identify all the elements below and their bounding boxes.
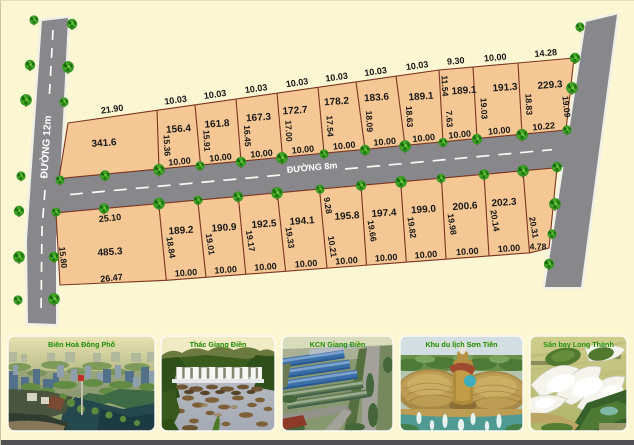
svg-text:10.00: 10.00 <box>333 140 356 152</box>
svg-text:Khu du lịch Sơn Tiên: Khu du lịch Sơn Tiên <box>425 340 497 349</box>
svg-text:167.3: 167.3 <box>246 112 272 125</box>
svg-text:190.9: 190.9 <box>211 222 237 235</box>
svg-text:10.00: 10.00 <box>335 255 358 267</box>
svg-text:172.7: 172.7 <box>282 105 308 118</box>
svg-text:9.30: 9.30 <box>447 55 465 67</box>
svg-text:KCN Giang Điền: KCN Giang Điền <box>310 340 366 349</box>
svg-text:229.3: 229.3 <box>537 79 563 92</box>
svg-text:10.00: 10.00 <box>456 246 479 258</box>
svg-text:202.3: 202.3 <box>491 197 517 210</box>
svg-text:11.54: 11.54 <box>439 75 450 97</box>
svg-text:10.00: 10.00 <box>375 252 398 264</box>
svg-text:161.8: 161.8 <box>204 118 230 131</box>
svg-text:18.09: 18.09 <box>364 110 375 132</box>
svg-text:14.28: 14.28 <box>534 47 557 59</box>
svg-text:189.1: 189.1 <box>451 85 477 98</box>
svg-text:10.00: 10.00 <box>214 264 237 276</box>
svg-text:Sân bay Long Thành: Sân bay Long Thành <box>543 340 614 349</box>
svg-text:10.00: 10.00 <box>291 144 314 156</box>
svg-text:Thác Giang Điền: Thác Giang Điền <box>190 340 247 349</box>
svg-text:17.00: 17.00 <box>283 120 294 142</box>
svg-text:18.83: 18.83 <box>523 93 534 115</box>
svg-text:192.5: 192.5 <box>251 218 277 231</box>
svg-text:16.45: 16.45 <box>242 125 253 147</box>
svg-text:341.6: 341.6 <box>91 137 117 150</box>
svg-text:197.4: 197.4 <box>371 207 397 220</box>
svg-text:10.00: 10.00 <box>484 52 507 64</box>
svg-text:10.00: 10.00 <box>254 261 277 273</box>
svg-text:195.8: 195.8 <box>334 210 360 223</box>
svg-text:18.63: 18.63 <box>404 106 415 128</box>
svg-text:10.00: 10.00 <box>414 249 437 261</box>
svg-text:10.00: 10.00 <box>295 258 318 270</box>
svg-text:10.00: 10.00 <box>497 243 520 255</box>
svg-text:17.54: 17.54 <box>324 115 335 137</box>
svg-text:10.00: 10.00 <box>174 267 197 279</box>
svg-text:4.78: 4.78 <box>530 242 547 252</box>
svg-text:178.2: 178.2 <box>324 96 350 109</box>
svg-text:200.6: 200.6 <box>452 200 478 213</box>
svg-text:485.3: 485.3 <box>97 246 123 259</box>
svg-text:Biên Hoà Đông Phố: Biên Hoà Đông Phố <box>48 340 116 349</box>
svg-text:10.00: 10.00 <box>250 148 273 160</box>
svg-text:189.1: 189.1 <box>408 91 434 104</box>
svg-text:19.03: 19.03 <box>478 98 489 120</box>
svg-text:15.36: 15.36 <box>161 134 172 156</box>
svg-text:183.6: 183.6 <box>364 92 390 105</box>
svg-text:199.0: 199.0 <box>411 204 437 217</box>
svg-text:10.22: 10.22 <box>532 120 555 132</box>
svg-text:7.63: 7.63 <box>444 110 455 127</box>
svg-text:15.91: 15.91 <box>201 130 212 152</box>
svg-text:191.3: 191.3 <box>492 82 518 95</box>
